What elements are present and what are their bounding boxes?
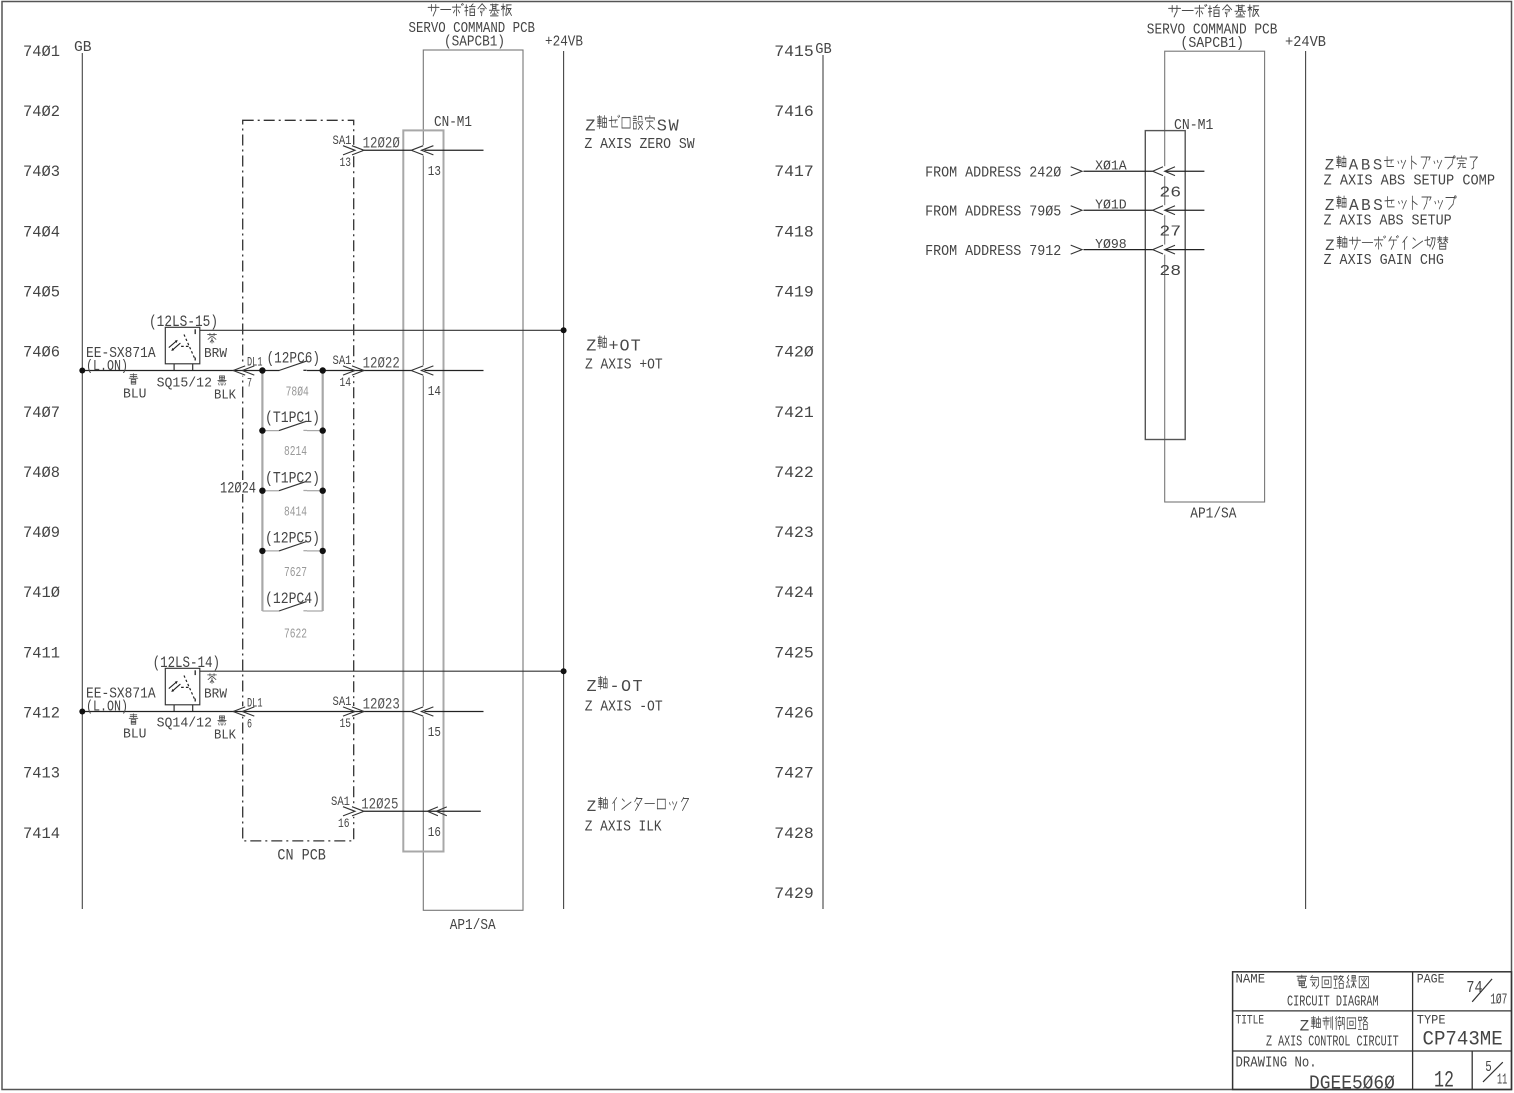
svg-text:7: 7 [247, 376, 252, 391]
svg-text:7423: 7423 [774, 524, 814, 542]
svg-text:+24VB: +24VB [1285, 33, 1326, 51]
svg-text:(12PC4): (12PC4) [265, 590, 320, 608]
svg-text:(SAPCB1): (SAPCB1) [1180, 35, 1244, 52]
svg-text:SA1: SA1 [331, 794, 350, 809]
svg-text:7427: 7427 [774, 765, 814, 783]
svg-text:SQ14/12: SQ14/12 [157, 716, 212, 732]
svg-text:74Ø5: 74Ø5 [23, 284, 60, 302]
svg-text:(12LS-14): (12LS-14) [153, 654, 220, 672]
svg-text:BRW: BRW [204, 347, 228, 362]
svg-text:7412: 7412 [23, 705, 60, 723]
svg-text:-: - [610, 678, 620, 697]
svg-text:26: 26 [1159, 186, 1181, 202]
svg-text:13: 13 [428, 164, 441, 180]
svg-text:(12PC6): (12PC6) [267, 350, 321, 368]
svg-text:S: S [657, 117, 667, 136]
svg-text:7415: 7415 [774, 43, 814, 61]
svg-text:Z AXIS ZERO SW: Z AXIS ZERO SW [584, 137, 695, 153]
svg-text:SA1: SA1 [333, 694, 352, 709]
svg-text:12Ø24: 12Ø24 [220, 480, 256, 498]
svg-text:16: 16 [428, 825, 441, 841]
svg-text:+24VB: +24VB [545, 33, 583, 51]
svg-text:15: 15 [340, 716, 352, 731]
svg-text:74Ø6: 74Ø6 [23, 344, 60, 362]
svg-text:DL1: DL1 [247, 696, 263, 711]
svg-text:DGEE5Ø6Ø: DGEE5Ø6Ø [1309, 1073, 1395, 1093]
svg-text:(L.ON): (L.ON) [86, 699, 128, 715]
svg-text:7419: 7419 [774, 284, 814, 302]
svg-text:O: O [621, 678, 631, 697]
svg-text:7411: 7411 [23, 644, 60, 662]
svg-text:TYPE: TYPE [1417, 1014, 1446, 1028]
svg-text:Z AXIS +OT: Z AXIS +OT [585, 358, 663, 374]
svg-text:8214: 8214 [284, 444, 307, 460]
svg-text:7424: 7424 [774, 584, 814, 602]
svg-text:1Ø7: 1Ø7 [1490, 992, 1507, 1009]
svg-text:BLU: BLU [123, 388, 147, 403]
svg-text:74Ø4: 74Ø4 [23, 223, 60, 241]
svg-text:SA1: SA1 [333, 353, 352, 368]
svg-text:GB: GB [74, 40, 92, 56]
svg-text:A: A [1349, 157, 1359, 175]
svg-text:Z AXIS ABS SETUP COMP: Z AXIS ABS SETUP COMP [1324, 173, 1496, 189]
svg-text:(T1PC2): (T1PC2) [265, 469, 320, 487]
svg-text:741Ø: 741Ø [23, 584, 60, 602]
svg-text:(12LS-15): (12LS-15) [149, 313, 218, 331]
svg-text:S: S [1373, 197, 1383, 215]
svg-text:78Ø4: 78Ø4 [286, 385, 309, 401]
svg-text:T: T [631, 337, 641, 356]
svg-text:7622: 7622 [284, 626, 307, 642]
svg-text:XØ1A: XØ1A [1095, 158, 1127, 174]
svg-text:Z: Z [587, 798, 596, 816]
svg-text:74Ø8: 74Ø8 [23, 464, 60, 482]
svg-text:CN-M1: CN-M1 [1174, 117, 1213, 134]
svg-text:7426: 7426 [774, 705, 814, 723]
svg-text:7413: 7413 [23, 765, 60, 783]
svg-text:Z AXIS ABS SETUP: Z AXIS ABS SETUP [1324, 213, 1452, 229]
svg-text:7417: 7417 [774, 163, 814, 181]
svg-text:CP743ME: CP743ME [1423, 1029, 1503, 1052]
svg-text:12Ø23: 12Ø23 [363, 696, 400, 714]
svg-text:74Ø3: 74Ø3 [23, 163, 60, 181]
svg-text:Z: Z [1325, 197, 1335, 215]
svg-text:CN-M1: CN-M1 [434, 114, 472, 131]
svg-text:T: T [633, 678, 643, 697]
svg-text:12Ø25: 12Ø25 [361, 796, 398, 814]
svg-text:74Ø2: 74Ø2 [23, 103, 60, 121]
svg-text:12: 12 [1434, 1068, 1454, 1093]
svg-text:13: 13 [340, 155, 352, 170]
svg-text:7627: 7627 [284, 565, 307, 581]
svg-text:A: A [1349, 197, 1359, 215]
svg-text:11: 11 [1497, 1071, 1507, 1088]
svg-text:74Ø9: 74Ø9 [23, 524, 60, 542]
svg-text:12Ø2Ø: 12Ø2Ø [363, 135, 400, 153]
svg-text:15: 15 [428, 725, 441, 741]
svg-text:DRAWING No.: DRAWING No. [1236, 1056, 1317, 1072]
svg-text:+: + [608, 337, 618, 356]
svg-text:SQ15/12: SQ15/12 [157, 376, 212, 392]
svg-text:74Ø1: 74Ø1 [23, 43, 60, 61]
svg-text:CN PCB: CN PCB [277, 846, 326, 864]
svg-text:DL1: DL1 [247, 355, 263, 370]
svg-text:74Ø7: 74Ø7 [23, 404, 60, 422]
svg-text:FROM ADDRESS 7912: FROM ADDRESS 7912 [925, 244, 1061, 260]
svg-text:Z: Z [585, 117, 595, 136]
svg-text:BLK: BLK [214, 389, 237, 404]
svg-text:PAGE: PAGE [1417, 973, 1445, 987]
svg-text:7418: 7418 [774, 223, 814, 241]
svg-text:7425: 7425 [774, 644, 814, 662]
svg-text:Z AXIS ILK: Z AXIS ILK [585, 820, 662, 836]
svg-text:O: O [620, 337, 630, 356]
svg-text:FROM ADDRESS 242Ø: FROM ADDRESS 242Ø [925, 166, 1062, 182]
svg-text:GB: GB [815, 42, 832, 58]
svg-text:6: 6 [247, 717, 252, 732]
svg-text:16: 16 [338, 816, 350, 831]
svg-text:74: 74 [1466, 978, 1482, 997]
svg-text:7416: 7416 [774, 103, 814, 121]
svg-text:YØ98: YØ98 [1095, 237, 1127, 253]
svg-text:Z AXIS GAIN CHG: Z AXIS GAIN CHG [1324, 253, 1444, 269]
svg-text:8414: 8414 [284, 505, 307, 521]
svg-text:BLU: BLU [123, 728, 147, 743]
svg-text:NAME: NAME [1236, 973, 1266, 987]
svg-text:Z AXIS -OT: Z AXIS -OT [585, 700, 663, 716]
svg-text:B: B [1361, 197, 1371, 215]
svg-text:(SAPCB1): (SAPCB1) [444, 34, 505, 51]
svg-text:B: B [1361, 157, 1370, 175]
svg-text:Z: Z [586, 337, 596, 356]
svg-text:7414: 7414 [23, 825, 60, 843]
svg-text:7421: 7421 [774, 404, 814, 422]
svg-text:(L.ON): (L.ON) [86, 359, 128, 375]
svg-text:7428: 7428 [774, 825, 814, 843]
svg-text:(T1PC1): (T1PC1) [265, 409, 320, 427]
svg-text:27: 27 [1159, 225, 1181, 241]
svg-text:YØ1D: YØ1D [1095, 197, 1127, 213]
svg-text:TITLE: TITLE [1236, 1014, 1265, 1028]
svg-text:14: 14 [428, 384, 441, 400]
svg-text:742Ø: 742Ø [774, 344, 814, 362]
svg-text:28: 28 [1159, 264, 1181, 280]
svg-text:SA1: SA1 [333, 133, 352, 148]
svg-text:12Ø22: 12Ø22 [363, 355, 400, 373]
svg-text:Z: Z [586, 678, 596, 697]
svg-text:BRW: BRW [204, 687, 228, 702]
svg-text:(12PC5): (12PC5) [265, 530, 320, 548]
svg-text:7429: 7429 [774, 885, 814, 903]
svg-text:W: W [668, 117, 679, 136]
svg-text:S: S [1373, 157, 1382, 175]
svg-text:14: 14 [340, 375, 352, 390]
svg-text:Z AXIS CONTROL CIRCUIT: Z AXIS CONTROL CIRCUIT [1266, 1035, 1399, 1051]
svg-text:AP1/SA: AP1/SA [450, 918, 496, 934]
svg-text:AP1/SA: AP1/SA [1190, 506, 1236, 522]
svg-text:CIRCUIT DIAGRAM: CIRCUIT DIAGRAM [1287, 995, 1379, 1011]
svg-text:Z: Z [1300, 1017, 1310, 1035]
svg-text:Z: Z [1325, 157, 1334, 175]
svg-text:BLK: BLK [214, 729, 237, 744]
svg-text:FROM ADDRESS 79Ø5: FROM ADDRESS 79Ø5 [925, 205, 1061, 221]
svg-text:7422: 7422 [774, 464, 814, 482]
